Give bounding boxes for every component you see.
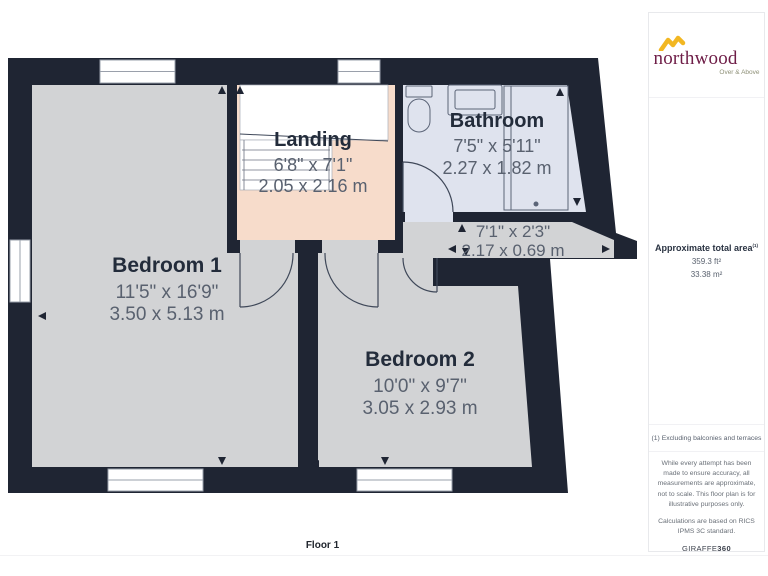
bathroom-imperial: 7'5" x 5'11" bbox=[453, 136, 540, 156]
bedroom-1-metric: 3.50 x 5.13 m bbox=[109, 304, 224, 325]
landing-name: Landing bbox=[274, 129, 352, 151]
bedroom-2-metric: 3.05 x 2.93 m bbox=[362, 398, 477, 419]
brand-name: northwood bbox=[654, 49, 760, 68]
brand-tagline: Over & Above bbox=[654, 69, 760, 76]
toilet bbox=[406, 86, 432, 132]
floorplan-page: Bedroom 1 11'5" x 16'9" 3.50 x 5.13 m Be… bbox=[0, 0, 768, 576]
hallway-imperial: 7'1" x 2'3" bbox=[476, 222, 550, 241]
area-imperial: 359.3 ft² bbox=[649, 257, 764, 266]
page-divider bbox=[0, 555, 768, 556]
landing-imperial: 6'8" x 7'1" bbox=[274, 155, 353, 175]
bedroom-1-name: Bedroom 1 bbox=[112, 254, 222, 277]
footnote-text: (1) Excluding balconies and terraces bbox=[652, 435, 762, 442]
area-metric: 33.38 m² bbox=[649, 270, 764, 279]
provider-suffix: 360 bbox=[717, 544, 731, 553]
bathroom-metric: 2.27 x 1.82 m bbox=[442, 158, 551, 178]
standards-text: Calculations are based on RICS IPMS 3C s… bbox=[654, 517, 759, 537]
disclaimer-text: While every attempt has been made to ens… bbox=[654, 459, 759, 510]
disclaimer-section: While every attempt has been made to ens… bbox=[649, 452, 764, 551]
opening-bathroom bbox=[405, 212, 453, 222]
bedroom-2-name: Bedroom 2 bbox=[365, 348, 475, 371]
opening-bedroom-1 bbox=[240, 240, 295, 253]
bathroom-name: Bathroom bbox=[450, 110, 544, 132]
area-label: Approximate total area(1) bbox=[649, 243, 764, 253]
landing-metric: 2.05 x 2.16 m bbox=[258, 176, 367, 196]
bedroom-1-imperial: 11'5" x 16'9" bbox=[116, 282, 219, 303]
hallway-metric: 2.17 x 0.69 m bbox=[461, 241, 564, 260]
bedroom-2-imperial: 10'0" x 9'7" bbox=[373, 376, 467, 397]
floor-plan: Bedroom 1 11'5" x 16'9" 3.50 x 5.13 m Be… bbox=[0, 0, 645, 576]
provider-logo: GIRAFFE360 bbox=[654, 544, 759, 553]
area-section: Approximate total area(1) 359.3 ft² 33.3… bbox=[649, 98, 764, 425]
floor-label: Floor 1 bbox=[0, 540, 645, 551]
opening-bedroom-2 bbox=[322, 240, 378, 253]
provider-name: GIRAFFE bbox=[682, 544, 717, 553]
area-footnote-marker: (1) bbox=[753, 243, 759, 248]
area-label-text: Approximate total area bbox=[655, 243, 753, 253]
footnote-section: (1) Excluding balconies and terraces bbox=[649, 425, 764, 452]
northwood-logo: northwood Over & Above bbox=[654, 35, 760, 76]
info-sidebar: northwood Over & Above Approximate total… bbox=[648, 12, 765, 552]
logo-section: northwood Over & Above bbox=[649, 13, 764, 98]
